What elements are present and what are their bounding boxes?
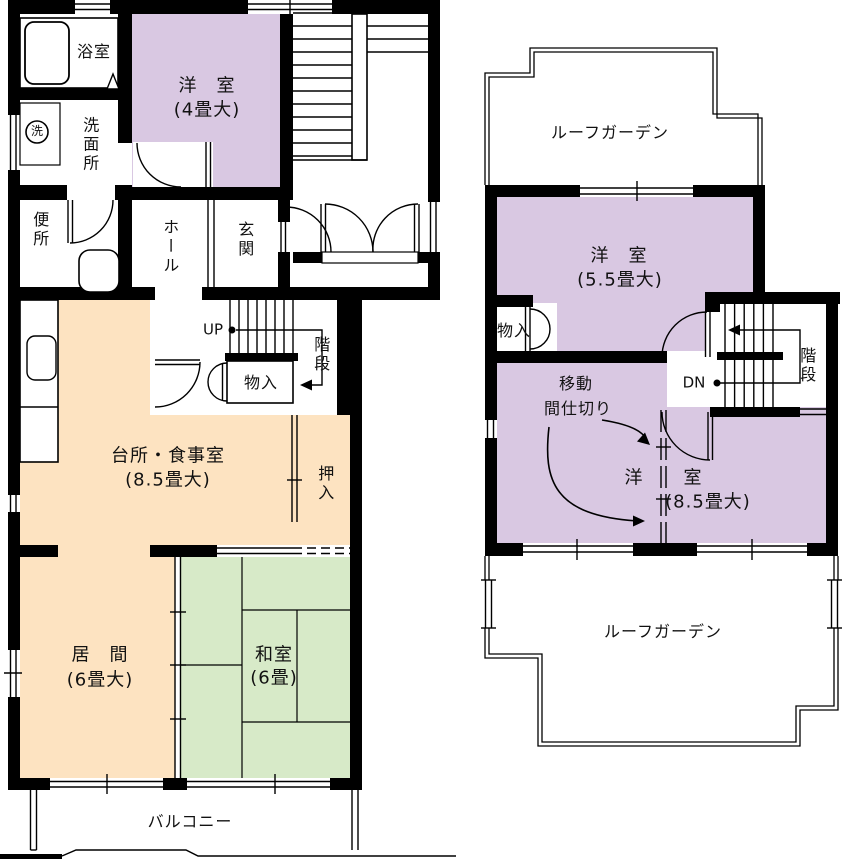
- label-hall: ホール: [160, 219, 178, 276]
- label-western55-size: (5.5畳大): [577, 271, 663, 292]
- label-western85-right: 室: [684, 469, 703, 490]
- label-storage-1f: 物入: [244, 374, 278, 392]
- label-living-size: (6畳大): [67, 671, 134, 692]
- label-roof-garden-top: ルーフガーデン: [551, 124, 669, 142]
- label-roof-garden-bottom: ルーフガーデン: [604, 623, 722, 641]
- label-tatami-name: 和室: [255, 646, 293, 667]
- label-partition-line2: 間仕切り: [544, 400, 612, 418]
- label-western4-name: 洋 室: [179, 77, 236, 98]
- label-storage-2f: 物入: [497, 322, 531, 340]
- label-western4-size: (4畳大): [174, 101, 241, 122]
- label-living-name: 居 間: [72, 646, 129, 667]
- label-tatami-size: (6畳): [250, 669, 298, 690]
- room-corridor2f: [533, 303, 705, 351]
- label-balcony: バルコニー: [148, 813, 233, 831]
- label-closet: 押入: [315, 465, 333, 503]
- label-stairs-1f: 階段: [311, 336, 329, 374]
- label-western85-left: 洋: [625, 469, 644, 490]
- label-bathroom: 浴室: [77, 43, 111, 61]
- label-kitchen-size: (8.5畳大): [125, 471, 211, 492]
- label-western55-name: 洋 室: [591, 247, 648, 268]
- room-living: [20, 557, 175, 778]
- label-toilet: 便所: [30, 211, 48, 249]
- label-entrance: 玄関: [235, 221, 253, 259]
- floor-plan: 浴室 洗 洗面所 便所 洋 室 (4畳大) ホール 玄関 UP 階段 物入 台所…: [0, 0, 851, 859]
- label-partition-line1: 移動: [559, 375, 593, 393]
- floorplan-graphics: [0, 0, 851, 859]
- label-stairs-up: UP: [203, 321, 223, 338]
- label-washer-icon: 洗: [31, 125, 43, 139]
- label-western85-size: (8.5畳大): [665, 493, 751, 514]
- label-kitchen-name: 台所・食事室: [111, 447, 225, 468]
- label-stairs-down: DN: [683, 374, 706, 391]
- label-stairs-2f: 階段: [797, 347, 815, 385]
- label-washroom: 洗面所: [80, 117, 98, 174]
